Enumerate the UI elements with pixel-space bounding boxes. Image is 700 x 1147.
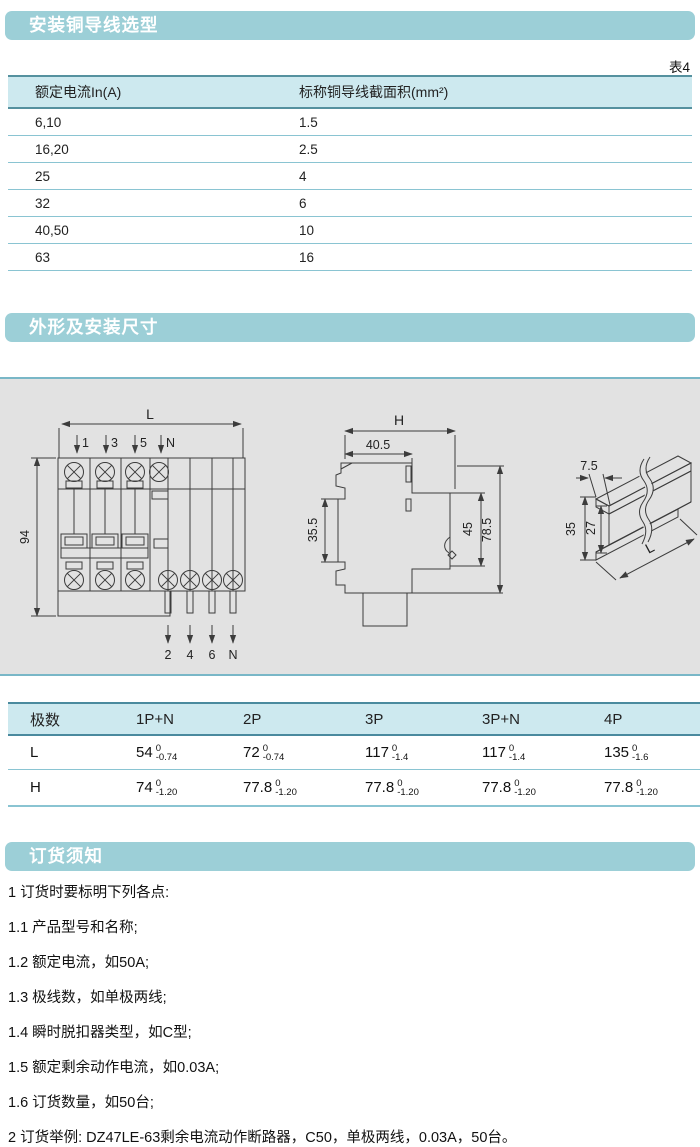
dim-value: 1350-1.6: [603, 735, 700, 770]
rail-dim-inner-height-label: 27: [584, 521, 598, 535]
front-top-terminal-label: N: [166, 436, 175, 450]
dim-value: 77.80-1.20: [603, 770, 700, 807]
dim-col-3p: 3P: [364, 703, 481, 735]
list-item: 1.5 额定剩余动作电流，如0.03A;: [8, 1060, 692, 1077]
dim-value: 1170-1.4: [364, 735, 481, 770]
dim-col-1pn: 1P+N: [135, 703, 242, 735]
wire-col-header-current: 额定电流In(A): [8, 76, 298, 108]
dimension-drawing: L 1 3 5 N: [0, 379, 700, 674]
front-top-terminal-label: 3: [111, 436, 118, 450]
dim-col-2p: 2P: [242, 703, 364, 735]
side-dim-total-width-label: H: [394, 412, 404, 428]
list-item: 1.1 产品型号和名称;: [8, 920, 692, 937]
side-dim-front-height-label: 45: [461, 522, 475, 536]
dim-value: 540-0.74: [135, 735, 242, 770]
table-row: 63 16: [8, 244, 692, 271]
dim-value: 720-0.74: [242, 735, 364, 770]
section-title: 外形及安装尺寸: [29, 317, 159, 337]
list-item: 2 订货举例: DZ47LE-63剩余电流动作断路器，C50，单极两线，0.03…: [8, 1130, 692, 1147]
front-top-terminal-label: 1: [82, 436, 89, 450]
list-item: 1.2 额定电流，如50A;: [8, 955, 692, 972]
cell-current: 32: [8, 190, 298, 217]
table-row: L 540-0.74 720-0.74 1170-1.4 1170-1.4 13…: [8, 735, 700, 770]
dim-value: 77.80-1.20: [242, 770, 364, 807]
front-bottom-terminal-label: 2: [165, 648, 172, 662]
dim-value: 1170-1.4: [481, 735, 603, 770]
cell-current: 16,20: [8, 136, 298, 163]
dim-value: 77.80-1.20: [364, 770, 481, 807]
section-title: 安装铜导线选型: [29, 15, 159, 35]
section-header-dimensions: 外形及安装尺寸: [5, 313, 695, 342]
dim-col-poles: 极数: [8, 703, 135, 735]
cell-current: 25: [8, 163, 298, 190]
side-dim-top-width-label: 40.5: [366, 438, 390, 452]
table-row: 16,20 2.5: [8, 136, 692, 163]
side-view-drawing: H 40.5 35.5 45 78.5: [306, 412, 504, 626]
cell-area: 1.5: [298, 108, 692, 136]
rail-dim-height-label: 35: [564, 522, 578, 536]
dim-value: 740-1.20: [135, 770, 242, 807]
front-bottom-terminal-label: N: [228, 648, 237, 662]
front-top-terminal-label: 5: [140, 436, 147, 450]
dim-col-3pn: 3P+N: [481, 703, 603, 735]
cell-area: 4: [298, 163, 692, 190]
cell-current: 6,10: [8, 108, 298, 136]
table-row: 25 4: [8, 163, 692, 190]
cell-current: 63: [8, 244, 298, 271]
dim-row-label: L: [8, 735, 135, 770]
front-bottom-terminal-label: 4: [187, 648, 194, 662]
din-rail-drawing: 7.5 35 27 L: [564, 456, 697, 580]
rail-dim-length-label: L: [642, 539, 657, 557]
table-row: 32 6: [8, 190, 692, 217]
ordering-notes-list: 1 订货时要标明下列各点: 1.1 产品型号和名称; 1.2 额定电流，如50A…: [8, 885, 692, 1147]
dim-table-header-row: 极数 1P+N 2P 3P 3P+N 4P: [8, 703, 700, 735]
side-dim-left-height-label: 35.5: [306, 518, 320, 542]
section-header-ordering: 订货须知: [5, 842, 695, 871]
cell-current: 40,50: [8, 217, 298, 244]
pole-dimension-table: 极数 1P+N 2P 3P 3P+N 4P L 540-0.74 720-0.7…: [8, 702, 700, 807]
dim-col-4p: 4P: [603, 703, 700, 735]
table4-label: 表4: [0, 56, 700, 74]
cell-area: 6: [298, 190, 692, 217]
front-dim-width-label: L: [146, 406, 154, 422]
cell-area: 2.5: [298, 136, 692, 163]
rail-dim-depth-label: 7.5: [580, 459, 597, 473]
table-row: 40,50 10: [8, 217, 692, 244]
wire-col-header-section-area: 标称铜导线截面积(mm²): [298, 76, 692, 108]
section-title: 订货须知: [29, 846, 103, 866]
dimension-drawing-panel: L 1 3 5 N: [0, 377, 700, 676]
list-item: 1.4 瞬时脱扣器类型，如C型;: [8, 1025, 692, 1042]
front-dim-height-label: 94: [18, 530, 32, 544]
side-dim-total-height-label: 78.5: [480, 518, 494, 542]
list-item: 1.3 极线数，如单极两线;: [8, 990, 692, 1007]
dim-row-label: H: [8, 770, 135, 807]
wire-table-header-row: 额定电流In(A) 标称铜导线截面积(mm²): [8, 76, 692, 108]
front-view-drawing: L 1 3 5 N: [18, 406, 245, 662]
cell-area: 16: [298, 244, 692, 271]
front-bottom-terminal-label: 6: [209, 648, 216, 662]
list-item: 1.6 订货数量，如50台;: [8, 1095, 692, 1112]
wire-selection-table: 额定电流In(A) 标称铜导线截面积(mm²) 6,10 1.5 16,20 2…: [8, 75, 692, 271]
list-item: 1 订货时要标明下列各点:: [8, 885, 692, 902]
table-row: H 740-1.20 77.80-1.20 77.80-1.20 77.80-1…: [8, 770, 700, 807]
cell-area: 10: [298, 217, 692, 244]
section-header-wire-selection: 安装铜导线选型: [5, 11, 695, 40]
dim-value: 77.80-1.20: [481, 770, 603, 807]
table-row: 6,10 1.5: [8, 108, 692, 136]
